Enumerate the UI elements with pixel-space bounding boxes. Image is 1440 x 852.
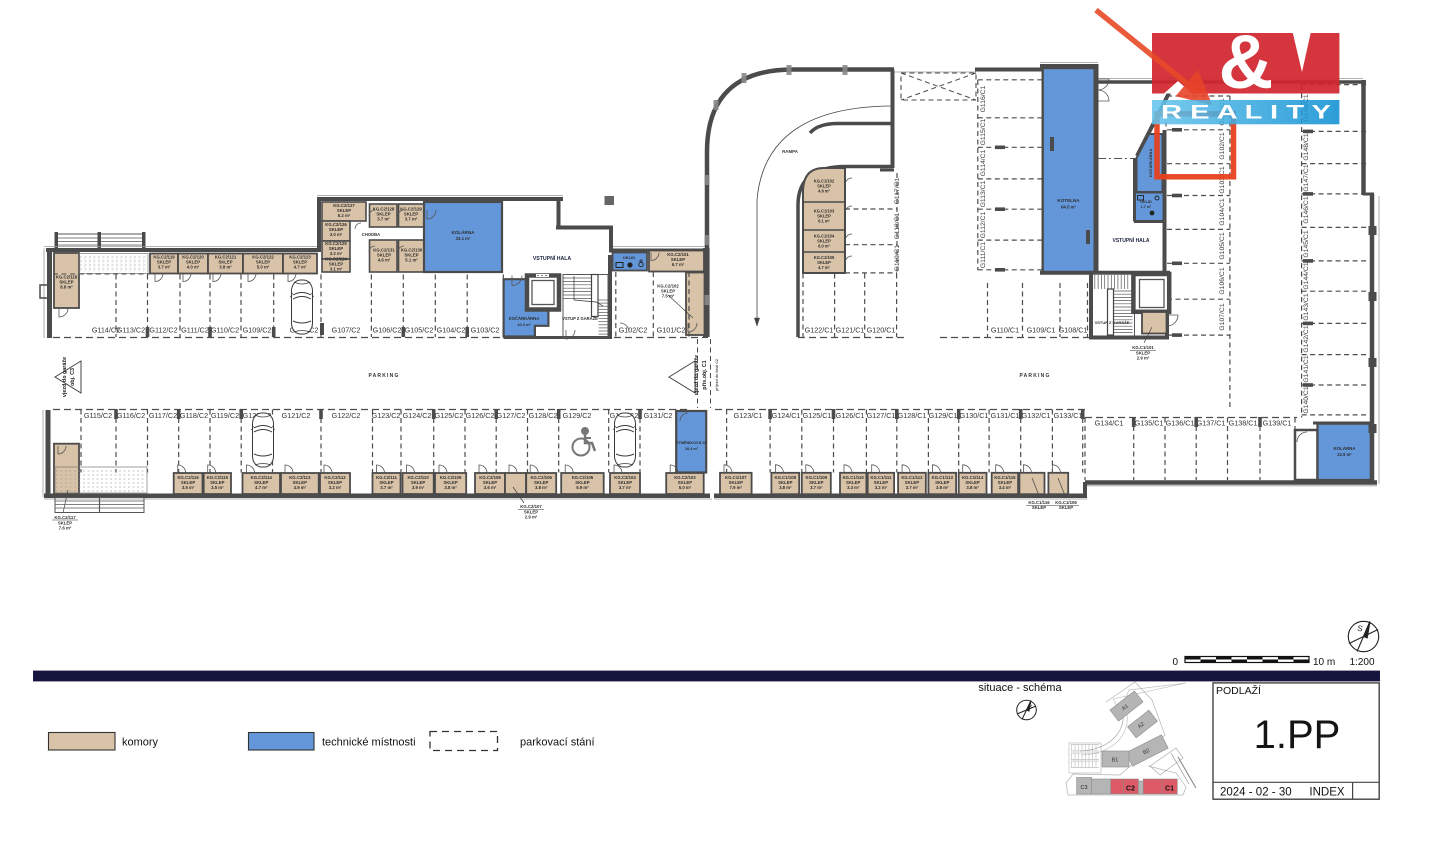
svg-text:G102/C1: G102/C1	[1219, 132, 1226, 159]
svg-text:KOČÁRKÁRNA: KOČÁRKÁRNA	[509, 316, 539, 321]
svg-text:3.8 m²: 3.8 m²	[219, 264, 232, 269]
svg-text:KOČÁRKÁRNA: KOČÁRKÁRNA	[1148, 149, 1153, 178]
svg-text:G110/C1: G110/C1	[991, 326, 1019, 335]
svg-text:4.7 m²: 4.7 m²	[255, 485, 268, 490]
svg-text:C2: C2	[1126, 786, 1135, 793]
svg-text:6.0 m²: 6.0 m²	[818, 243, 830, 248]
svg-text:G104/C1: G104/C1	[1219, 198, 1226, 225]
svg-text:1.PP: 1.PP	[1254, 713, 1341, 757]
svg-text:KOLÁRNA: KOLÁRNA	[1334, 446, 1357, 451]
svg-text:5.2 m²: 5.2 m²	[338, 213, 351, 218]
svg-text:5.0 m²: 5.0 m²	[679, 485, 692, 490]
svg-text:G111/C2: G111/C2	[181, 326, 209, 335]
svg-text:KOTELNA: KOTELNA	[1057, 198, 1080, 203]
svg-text:ÚKLID: ÚKLID	[623, 255, 635, 260]
svg-text:příjezd do části C2: příjezd do části C2	[715, 359, 719, 391]
svg-text:G128/C1: G128/C1	[898, 411, 927, 420]
svg-text:VSTUP Z GARÁŽE: VSTUP Z GARÁŽE	[562, 316, 598, 321]
svg-text:G122/C2: G122/C2	[332, 411, 361, 420]
svg-text:8.8 m²: 8.8 m²	[60, 284, 73, 289]
svg-text:G115/C1: G115/C1	[980, 118, 987, 145]
svg-text:PODLAŽÍ: PODLAŽÍ	[1216, 684, 1261, 697]
svg-text:G105/C2: G105/C2	[405, 326, 434, 335]
svg-text:3.8 m²: 3.8 m²	[535, 485, 548, 490]
svg-text:G104/C2: G104/C2	[437, 326, 466, 335]
svg-text:2024 - 02 - 30: 2024 - 02 - 30	[1220, 787, 1292, 799]
svg-text:KG.C2/117: KG.C2/117	[54, 515, 76, 520]
svg-text:vjezd do garáže: vjezd do garáže	[62, 357, 68, 397]
svg-text:G131/C2: G131/C2	[644, 411, 673, 420]
svg-text:obj. C3: obj. C3	[70, 368, 76, 386]
svg-text:3.8 m²: 3.8 m²	[966, 485, 979, 490]
svg-text:2.9 m²: 2.9 m²	[1137, 356, 1150, 361]
svg-text:G116/C1: G116/C1	[980, 85, 987, 112]
svg-text:KOLÁRNA: KOLÁRNA	[452, 229, 476, 235]
svg-text:G137/C1: G137/C1	[1197, 419, 1226, 428]
svg-text:3.3 m²: 3.3 m²	[847, 485, 860, 490]
svg-text:R E A L I T Y: R E A L I T Y	[1161, 102, 1331, 124]
svg-text:G111/C1: G111/C1	[980, 242, 987, 268]
svg-text:3.8 m²: 3.8 m²	[444, 485, 457, 490]
svg-text:PARKING: PARKING	[368, 373, 399, 379]
svg-text:G112/C1: G112/C1	[980, 211, 987, 238]
svg-text:G115/C2: G115/C2	[84, 411, 112, 420]
svg-text:G135/C1: G135/C1	[1135, 419, 1164, 428]
svg-text:G117/C2: G117/C2	[149, 411, 177, 420]
svg-text:4.9 m²: 4.9 m²	[294, 485, 307, 490]
svg-text:3.8 m²: 3.8 m²	[936, 485, 949, 490]
svg-text:G144/C1: G144/C1	[1303, 262, 1310, 289]
svg-text:G103/C1: G103/C1	[1219, 166, 1226, 193]
svg-text:INDEX: INDEX	[1309, 787, 1344, 799]
svg-text:G121/C2: G121/C2	[282, 411, 311, 420]
svg-text:G140/C1: G140/C1	[1303, 386, 1310, 413]
svg-text:G119/C1: G119/C1	[894, 244, 901, 271]
svg-text:10.4 m²: 10.4 m²	[685, 447, 699, 451]
svg-text:G116/C2: G116/C2	[117, 411, 145, 420]
svg-text:G126/C2: G126/C2	[466, 411, 495, 420]
svg-text:G138/C1: G138/C1	[1229, 419, 1258, 428]
svg-text:3.7 m²: 3.7 m²	[405, 216, 418, 221]
svg-text:3.7 m²: 3.7 m²	[810, 485, 823, 490]
svg-text:C1: C1	[1165, 786, 1174, 793]
svg-text:3.6 m²: 3.6 m²	[484, 485, 497, 490]
svg-text:G143/C1: G143/C1	[1303, 293, 1310, 320]
svg-text:3.1 m²: 3.1 m²	[330, 266, 343, 271]
svg-text:G127/C2: G127/C2	[497, 411, 526, 420]
svg-text:technické místnosti: technické místnosti	[322, 737, 416, 749]
svg-text:G125/C1: G125/C1	[803, 411, 832, 420]
svg-text:3.0 m²: 3.0 m²	[330, 232, 343, 237]
svg-text:G142/C1: G142/C1	[1303, 325, 1310, 352]
svg-text:G127/C1: G127/C1	[867, 411, 896, 420]
svg-text:VÝMĚNÍKOVÁ ST: VÝMĚNÍKOVÁ ST	[676, 440, 708, 445]
svg-text:G121/C1: G121/C1	[836, 326, 865, 335]
svg-text:CHODBA: CHODBA	[362, 232, 380, 237]
svg-text:7.5 m²: 7.5 m²	[662, 293, 675, 298]
svg-text:G123/C1: G123/C1	[734, 411, 763, 420]
svg-text:situace - schéma: situace - schéma	[978, 682, 1062, 694]
svg-text:3.5 m²: 3.5 m²	[182, 485, 195, 490]
svg-text:3.4 m²: 3.4 m²	[999, 485, 1012, 490]
svg-text:3.2 m²: 3.2 m²	[330, 251, 343, 256]
svg-text:G120/C1: G120/C1	[867, 326, 896, 335]
svg-text:64.5 m²: 64.5 m²	[1061, 205, 1076, 210]
svg-text:G129/C2: G129/C2	[563, 411, 592, 420]
svg-text:VSTUP Z GARÁŽE: VSTUP Z GARÁŽE	[1095, 320, 1130, 325]
svg-text:3.7 m²: 3.7 m²	[619, 485, 632, 490]
svg-text:7.6 m²: 7.6 m²	[59, 526, 72, 531]
svg-text:G107/C1: G107/C1	[1219, 303, 1226, 330]
svg-text:4.7 m²: 4.7 m²	[818, 265, 830, 270]
svg-text:5.9 m²: 5.9 m²	[576, 485, 589, 490]
svg-text:2.9 m²: 2.9 m²	[525, 515, 538, 520]
svg-text:G133/C1: G133/C1	[1054, 411, 1083, 420]
svg-text:G119/C2: G119/C2	[211, 411, 239, 420]
svg-text:G148/C1: G148/C1	[1303, 133, 1310, 160]
svg-text:G129/C1: G129/C1	[929, 411, 958, 420]
svg-text:G107/C2: G107/C2	[332, 326, 361, 335]
svg-text:G105/C1: G105/C1	[1219, 232, 1226, 259]
svg-text:G125/C2: G125/C2	[435, 411, 464, 420]
svg-text:7.9 m²: 7.9 m²	[730, 485, 743, 490]
svg-text:5.0 m²: 5.0 m²	[257, 264, 270, 269]
svg-text:33.1 m²: 33.1 m²	[456, 236, 471, 241]
svg-text:G114/C2: G114/C2	[92, 326, 120, 335]
svg-text:C3: C3	[1080, 785, 1087, 791]
svg-text:G124/C1: G124/C1	[772, 411, 801, 420]
svg-text:G124/C2: G124/C2	[403, 411, 432, 420]
svg-text:G147/C1: G147/C1	[1303, 164, 1310, 191]
svg-text:3.5 m²: 3.5 m²	[211, 485, 224, 490]
svg-text:G106/C2: G106/C2	[373, 326, 402, 335]
svg-text:G118/C2: G118/C2	[180, 411, 208, 420]
svg-text:G123/C2: G123/C2	[372, 411, 401, 420]
svg-text:VSTUPNÍ HALA: VSTUPNÍ HALA	[1113, 236, 1150, 244]
svg-text:3.7 m²: 3.7 m²	[158, 264, 171, 269]
svg-text:G114/C1: G114/C1	[980, 149, 987, 176]
svg-text:G113/C1: G113/C1	[980, 180, 987, 207]
svg-text:G109/C1: G109/C1	[1027, 326, 1056, 335]
svg-text:G136/C1: G136/C1	[1166, 419, 1195, 428]
svg-text:přís.obj. C1: přís.obj. C1	[702, 360, 708, 389]
svg-text:1.7 m²: 1.7 m²	[1141, 205, 1152, 209]
svg-text:G103/C2: G103/C2	[471, 326, 500, 335]
svg-text:G122/C1: G122/C1	[805, 326, 834, 335]
svg-text:PARKING: PARKING	[1019, 373, 1050, 379]
svg-text:4.7 m²: 4.7 m²	[294, 264, 307, 269]
svg-text:3.8 m²: 3.8 m²	[779, 485, 792, 490]
svg-text:KG.C2/107: KG.C2/107	[520, 504, 542, 509]
svg-text:G102/C2: G102/C2	[619, 326, 648, 335]
svg-text:10 m: 10 m	[1313, 657, 1335, 668]
svg-text:G132/C1: G132/C1	[1022, 411, 1051, 420]
svg-text:G113/C2: G113/C2	[117, 326, 145, 335]
svg-text:G108/C1: G108/C1	[1059, 326, 1088, 335]
svg-text:6.7 m²: 6.7 m²	[672, 262, 685, 267]
svg-text:3.2 m²: 3.2 m²	[329, 485, 342, 490]
svg-text:4.0 m²: 4.0 m²	[187, 264, 200, 269]
svg-text:G146/C1: G146/C1	[1303, 196, 1310, 223]
svg-text:G139/C1: G139/C1	[1263, 419, 1292, 428]
svg-text:&: &	[1219, 20, 1274, 105]
svg-text:G109/C2: G109/C2	[243, 326, 272, 335]
svg-text:RAMPA: RAMPA	[782, 149, 799, 154]
svg-text:G130/C1: G130/C1	[960, 411, 989, 420]
svg-text:22.9 m²: 22.9 m²	[1337, 452, 1352, 457]
svg-text:3.7 m²: 3.7 m²	[380, 485, 393, 490]
svg-text:VSTUPNÍ HALA: VSTUPNÍ HALA	[533, 254, 572, 262]
svg-text:6.1 m²: 6.1 m²	[818, 218, 830, 223]
svg-text:4.9 m²: 4.9 m²	[818, 188, 830, 193]
svg-text:0: 0	[1172, 657, 1178, 668]
svg-text:G117/C1: G117/C1	[894, 177, 901, 204]
svg-text:G134/C1: G134/C1	[1095, 419, 1124, 428]
svg-text:B1: B1	[1112, 758, 1119, 764]
svg-text:G131/C1: G131/C1	[991, 411, 1020, 420]
svg-text:parkovací stání: parkovací stání	[520, 737, 595, 749]
svg-text:4.6 m²: 4.6 m²	[378, 257, 391, 262]
svg-text:G128/C2: G128/C2	[529, 411, 558, 420]
svg-text:G106/C1: G106/C1	[1219, 267, 1226, 294]
svg-text:G101/C2: G101/C2	[657, 326, 686, 335]
svg-text:G141/C1: G141/C1	[1303, 355, 1310, 382]
svg-text:G118/C1: G118/C1	[894, 212, 901, 239]
svg-text:3.2 m²: 3.2 m²	[875, 485, 888, 490]
svg-text:1:200: 1:200	[1349, 657, 1374, 668]
svg-text:10.3 m²: 10.3 m²	[517, 322, 531, 327]
svg-text:3.7 m²: 3.7 m²	[906, 485, 919, 490]
svg-text:komory: komory	[122, 737, 159, 749]
svg-text:G112/C2: G112/C2	[149, 326, 177, 335]
svg-text:KG.C1/101: KG.C1/101	[1132, 345, 1154, 350]
svg-text:5.1 m²: 5.1 m²	[405, 257, 418, 262]
svg-text:3.9 m²: 3.9 m²	[412, 485, 425, 490]
svg-text:3.7 m²: 3.7 m²	[377, 216, 390, 221]
svg-text:G145/C1: G145/C1	[1303, 230, 1310, 257]
svg-text:G126/C1: G126/C1	[836, 411, 865, 420]
svg-text:G110/C2: G110/C2	[211, 326, 239, 335]
